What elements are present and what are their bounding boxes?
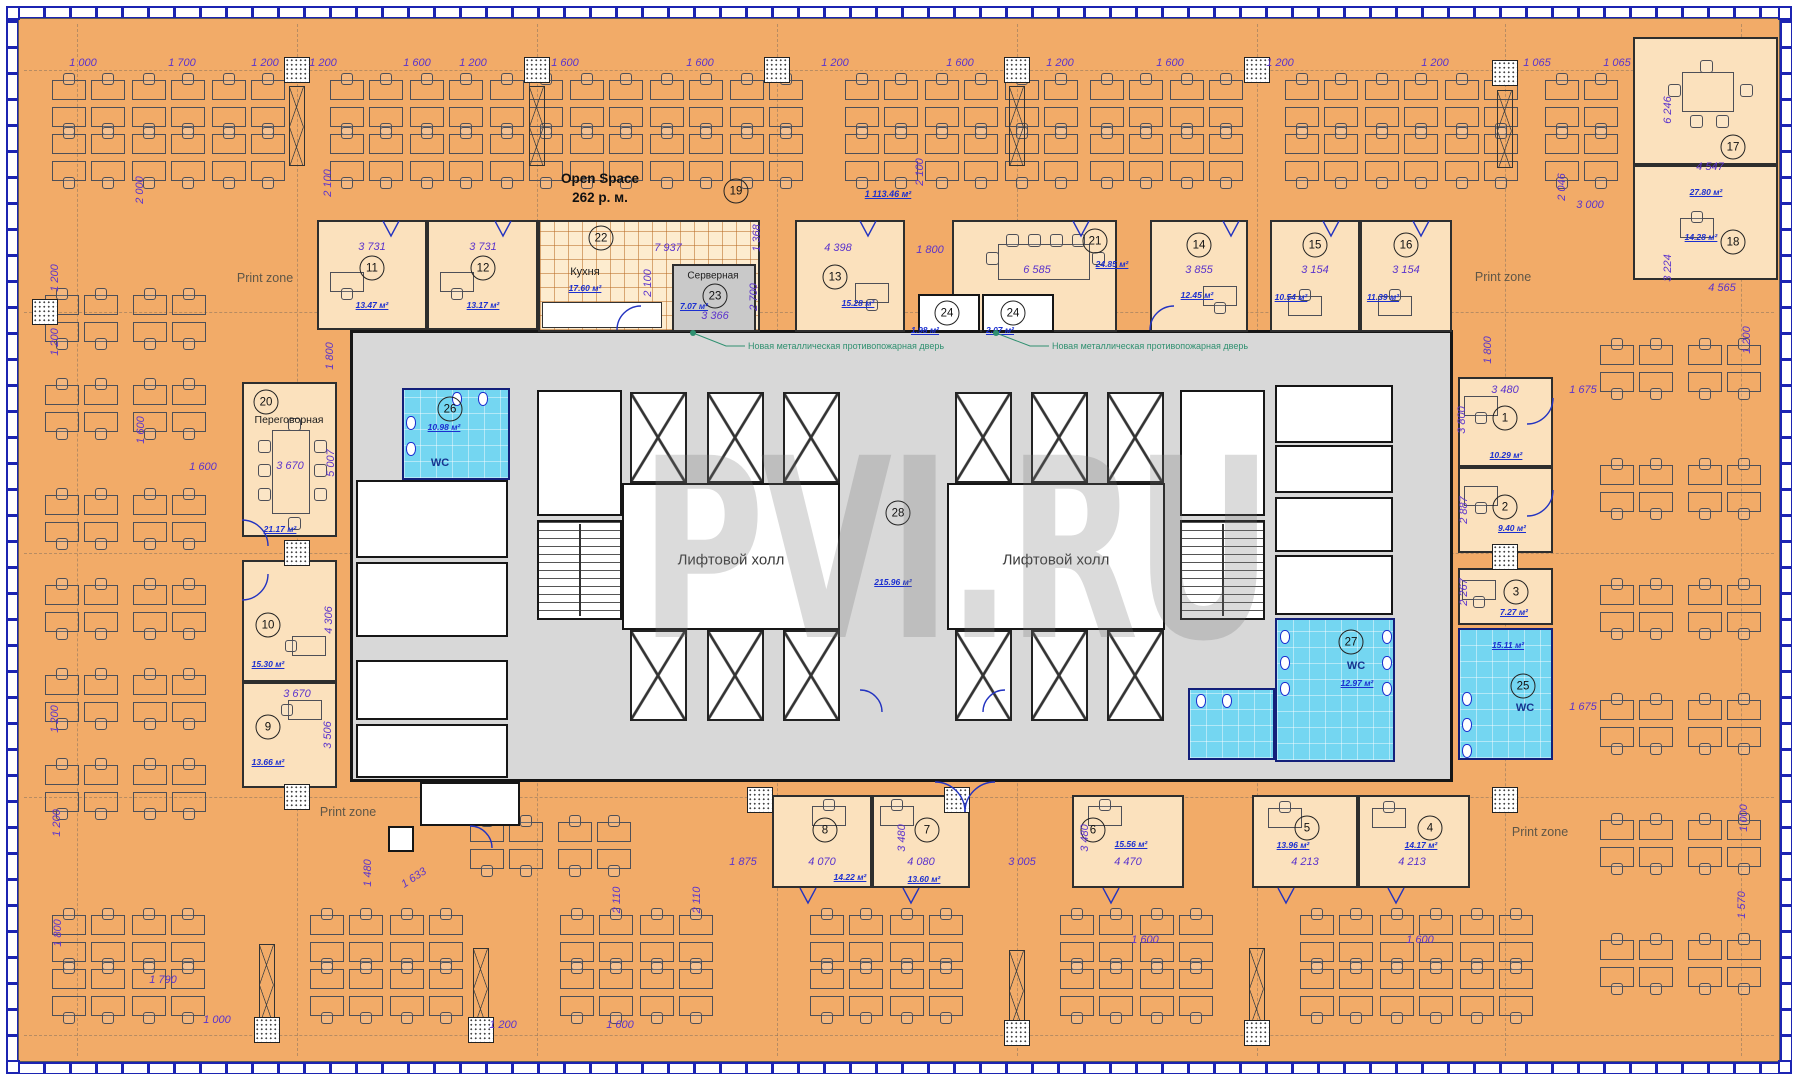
- chair-icon: [95, 758, 107, 770]
- core-room: [1275, 385, 1393, 443]
- chair-icon: [183, 378, 195, 390]
- area-label: 14.17 м²: [1405, 840, 1438, 850]
- room-number-badge: 3: [1504, 580, 1529, 605]
- chair-icon: [341, 73, 353, 85]
- chair-icon: [144, 808, 156, 820]
- chair-icon: [1311, 1012, 1323, 1024]
- chair-icon: [1740, 84, 1753, 97]
- room-number-badge: 15: [1303, 233, 1328, 258]
- chair-icon: [1181, 73, 1193, 85]
- chair-icon: [401, 962, 413, 974]
- chair-icon: [360, 1012, 372, 1024]
- dimension-label: 1 875: [729, 856, 757, 868]
- dimension-label: 1 065: [1523, 57, 1551, 69]
- chair-icon: [1738, 693, 1750, 705]
- area-label: 15.28 м²: [842, 298, 875, 308]
- chair-icon: [571, 1012, 583, 1024]
- chair-icon: [821, 962, 833, 974]
- chair-icon: [1650, 743, 1662, 755]
- stair-divider: [579, 524, 581, 616]
- stair-divider: [1222, 524, 1224, 616]
- chair-icon: [56, 628, 68, 640]
- chair-icon: [741, 73, 753, 85]
- chair-icon: [1190, 962, 1202, 974]
- area-label: 2.07 м²: [986, 325, 1014, 335]
- chair-icon: [1140, 127, 1152, 139]
- chair-icon: [856, 127, 868, 139]
- chair-icon: [1055, 127, 1067, 139]
- chair-icon: [975, 73, 987, 85]
- chair-icon: [440, 1012, 452, 1024]
- chair-icon: [651, 908, 663, 920]
- chair-icon: [183, 288, 195, 300]
- chair-icon: [102, 1012, 114, 1024]
- elevator-shaft: [783, 630, 840, 721]
- chair-icon: [1055, 73, 1067, 85]
- chair-icon: [581, 127, 593, 139]
- chair-icon: [700, 177, 712, 189]
- dimension-label: 1 200: [489, 1019, 517, 1031]
- dimension-label: 2 110: [611, 887, 623, 914]
- chair-icon: [1738, 743, 1750, 755]
- room-number-badge: 7: [915, 818, 940, 843]
- chair-icon: [1071, 908, 1083, 920]
- core-room: [1180, 390, 1265, 516]
- area-label: 13.17 м²: [467, 300, 500, 310]
- chair-icon: [1335, 73, 1347, 85]
- chair-icon: [821, 908, 833, 920]
- area-label: 10.29 м²: [1490, 450, 1523, 460]
- chair-icon: [901, 908, 913, 920]
- chair-icon: [608, 865, 620, 877]
- chair-icon: [1430, 908, 1442, 920]
- chair-icon: [421, 177, 433, 189]
- desk-icon: [292, 636, 326, 656]
- column: [764, 57, 790, 83]
- chair-icon: [1699, 458, 1711, 470]
- chair-icon: [1716, 115, 1729, 128]
- room-number-badge: 21: [1083, 229, 1108, 254]
- chair-icon: [1699, 338, 1711, 350]
- elevator-shaft: [707, 392, 764, 483]
- facade-l: [6, 20, 18, 1060]
- dimension-label: 1 600: [189, 461, 217, 473]
- chair-icon: [63, 73, 75, 85]
- chair-icon: [1181, 127, 1193, 139]
- elevator-shaft: [1107, 392, 1164, 483]
- chair-icon: [661, 177, 673, 189]
- chair-icon: [501, 127, 513, 139]
- room-number-badge: 25: [1511, 674, 1536, 699]
- chair-icon: [1611, 933, 1623, 945]
- dimension-label: 1 600: [403, 57, 431, 69]
- dimension-label: 1 200: [49, 705, 61, 733]
- core-room: [1275, 497, 1393, 552]
- chair-icon: [144, 338, 156, 350]
- floor-plan: Open Space 262 р. м. 1 113.46 м² PVI.RU …: [0, 0, 1798, 1080]
- chair-icon: [1220, 73, 1232, 85]
- chair-icon: [183, 578, 195, 590]
- area-label: 17.60 м²: [569, 283, 602, 293]
- chair-icon: [610, 962, 622, 974]
- chair-icon: [1415, 127, 1427, 139]
- dimension-label: 4 547: [1696, 161, 1724, 173]
- chair-icon: [102, 73, 114, 85]
- chair-icon: [1650, 693, 1662, 705]
- dimension-label: 3 506: [322, 721, 334, 749]
- open-space-label: Open Space 262 р. м.: [561, 170, 639, 208]
- chair-icon: [1028, 234, 1041, 247]
- chair-icon: [1430, 962, 1442, 974]
- chair-icon: [1383, 801, 1395, 813]
- chair-icon: [56, 758, 68, 770]
- print-zone-label: Print zone: [237, 271, 293, 285]
- dimension-label: 2 046: [1556, 173, 1568, 201]
- chair-icon: [690, 962, 702, 974]
- chair-icon: [1335, 127, 1347, 139]
- chair-icon: [690, 1012, 702, 1024]
- chair-icon: [1699, 933, 1711, 945]
- dimension-label: 1 600: [606, 1019, 634, 1031]
- chair-icon: [1699, 983, 1711, 995]
- dimension-label: 1 600: [686, 57, 714, 69]
- chair-icon: [144, 288, 156, 300]
- chair-icon: [1738, 933, 1750, 945]
- chair-icon: [661, 73, 673, 85]
- chair-icon: [481, 865, 493, 877]
- chair-icon: [182, 908, 194, 920]
- chair-icon: [183, 488, 195, 500]
- dimension-label: 1 800: [52, 919, 64, 947]
- chair-icon: [1376, 127, 1388, 139]
- chair-icon: [1700, 60, 1713, 73]
- chair-icon: [183, 428, 195, 440]
- elevator-shaft: [707, 630, 764, 721]
- dimension-label: 1 200: [51, 809, 63, 837]
- chair-icon: [1611, 743, 1623, 755]
- room-number-badge: 9: [256, 715, 281, 740]
- chair-icon: [1738, 628, 1750, 640]
- chair-icon: [1650, 813, 1662, 825]
- area-label: 15.30 м²: [252, 659, 285, 669]
- chair-icon: [1691, 211, 1703, 223]
- room-name-server: Серверная: [687, 271, 738, 282]
- wc-room: [1275, 618, 1395, 762]
- chair-icon: [1220, 177, 1232, 189]
- column: [254, 1017, 280, 1043]
- chair-icon: [1376, 73, 1388, 85]
- core-room: [1275, 555, 1393, 615]
- column: [284, 57, 310, 83]
- chair-icon: [223, 177, 235, 189]
- area-label: 1.98 м²: [911, 325, 939, 335]
- chair-icon: [95, 628, 107, 640]
- chair-icon: [258, 488, 271, 501]
- chair-icon: [321, 1012, 333, 1024]
- core-room: [356, 562, 508, 637]
- dimension-label: 1 800: [324, 342, 336, 370]
- chair-icon: [1456, 127, 1468, 139]
- chair-icon: [895, 73, 907, 85]
- elevator-shaft: [1107, 630, 1164, 721]
- dimension-label: 3 855: [1185, 264, 1213, 276]
- room-number-badge: 27: [1339, 630, 1364, 655]
- chair-icon: [1556, 127, 1568, 139]
- column: [1004, 57, 1030, 83]
- chair-icon: [440, 962, 452, 974]
- dimension-label: 3 005: [1008, 856, 1036, 868]
- chair-icon: [1376, 177, 1388, 189]
- chair-icon: [1473, 596, 1485, 608]
- toilet-icon: [478, 392, 488, 406]
- chair-icon: [63, 962, 75, 974]
- chair-icon: [421, 73, 433, 85]
- chair-icon: [1099, 799, 1111, 811]
- column: [1244, 1020, 1270, 1046]
- dimension-label: 1 200: [251, 57, 279, 69]
- chair-icon: [1190, 908, 1202, 920]
- chair-icon: [700, 73, 712, 85]
- chair-icon: [1151, 1012, 1163, 1024]
- area-label: 13.66 м²: [252, 757, 285, 767]
- column: [284, 540, 310, 566]
- chair-icon: [821, 1012, 833, 1024]
- dimension-label: 1 200: [49, 328, 61, 356]
- chair-icon: [1475, 502, 1487, 514]
- dimension-label: 4 213: [1398, 856, 1426, 868]
- dimension-label: 1 368: [751, 224, 763, 252]
- dimension-label: 1 200: [1266, 57, 1294, 69]
- dimension-label: 3 154: [1392, 264, 1420, 276]
- chair-icon: [95, 338, 107, 350]
- chair-icon: [1335, 177, 1347, 189]
- toilet-icon: [1280, 656, 1290, 670]
- chair-icon: [360, 908, 372, 920]
- chair-icon: [1650, 388, 1662, 400]
- elevator-shaft: [955, 392, 1012, 483]
- chair-icon: [63, 127, 75, 139]
- brace-icon: [259, 944, 275, 1026]
- chair-icon: [182, 127, 194, 139]
- column: [1492, 544, 1518, 570]
- chair-icon: [1311, 962, 1323, 974]
- chair-icon: [183, 718, 195, 730]
- chair-icon: [1050, 234, 1063, 247]
- toilet-icon: [1222, 694, 1232, 708]
- dimension-label: 4 306: [323, 606, 335, 634]
- area-label: 7.07 м²: [680, 301, 708, 311]
- chair-icon: [460, 127, 472, 139]
- chair-icon: [102, 908, 114, 920]
- area-label: 11.39 м²: [1367, 292, 1399, 302]
- chair-icon: [571, 962, 583, 974]
- chair-icon: [1510, 962, 1522, 974]
- chair-icon: [1699, 743, 1711, 755]
- dimension-label: 3 800: [1456, 406, 1468, 434]
- chair-icon: [1495, 177, 1507, 189]
- chair-icon: [401, 908, 413, 920]
- core-room: [1275, 445, 1393, 493]
- chair-icon: [1611, 338, 1623, 350]
- chair-icon: [183, 758, 195, 770]
- print-zone-label: Print zone: [1475, 270, 1531, 284]
- chair-icon: [1055, 177, 1067, 189]
- dimension-label: 5 007: [325, 449, 337, 477]
- dimension-label: 1 600: [1406, 934, 1434, 946]
- chair-icon: [569, 865, 581, 877]
- chair-icon: [620, 73, 632, 85]
- chair-icon: [183, 338, 195, 350]
- chair-icon: [540, 177, 552, 189]
- room-number-badge: 1: [1493, 406, 1518, 431]
- column: [284, 784, 310, 810]
- dimension-label: 1 065: [1603, 57, 1631, 69]
- meeting-table: [272, 430, 310, 514]
- chair-icon: [651, 1012, 663, 1024]
- chair-icon: [860, 962, 872, 974]
- chair-icon: [95, 808, 107, 820]
- kitchen-counter: [542, 302, 662, 328]
- core-room: [537, 390, 622, 516]
- brace-icon: [1009, 950, 1025, 1029]
- chair-icon: [1699, 508, 1711, 520]
- chair-icon: [380, 127, 392, 139]
- chair-icon: [401, 1012, 413, 1024]
- chair-icon: [183, 628, 195, 640]
- chair-icon: [63, 1012, 75, 1024]
- chair-icon: [901, 1012, 913, 1024]
- brace-icon: [289, 86, 305, 166]
- room-number-badge: 24: [935, 301, 960, 326]
- print-zone-label: Print zone: [1512, 825, 1568, 839]
- print-zone-label: Print zone: [320, 805, 376, 819]
- dimension-label: 1 200: [459, 57, 487, 69]
- chair-icon: [661, 127, 673, 139]
- chair-icon: [143, 1012, 155, 1024]
- room-number-badge: 4: [1418, 816, 1443, 841]
- meeting-table: [1682, 72, 1734, 112]
- toilet-icon: [1462, 692, 1472, 706]
- dimension-label: 1 675: [1569, 701, 1597, 713]
- chair-icon: [56, 378, 68, 390]
- chair-icon: [856, 73, 868, 85]
- grid-line-horizontal: [24, 1035, 1774, 1036]
- chair-icon: [1456, 177, 1468, 189]
- wc-label: WC: [431, 457, 449, 469]
- dimension-label: 4 398: [824, 242, 852, 254]
- chair-icon: [183, 538, 195, 550]
- chair-icon: [1101, 127, 1113, 139]
- chair-icon: [856, 177, 868, 189]
- facade-corner: [6, 6, 20, 20]
- chair-icon: [95, 578, 107, 590]
- dimension-label: 3 731: [469, 241, 497, 253]
- dimension-label: 1 675: [1569, 384, 1597, 396]
- room-number-badge: 26: [438, 397, 463, 422]
- room-name-meeting: Переговорная: [255, 414, 324, 426]
- facade-b: [20, 1062, 1778, 1074]
- dimension-label: 3 480: [896, 824, 908, 852]
- chair-icon: [860, 1012, 872, 1024]
- chair-icon: [341, 177, 353, 189]
- chair-icon: [1650, 863, 1662, 875]
- dimension-label: 6 246: [1662, 96, 1674, 124]
- fire-door-note: Новая металлическая противопожарная двер…: [748, 341, 944, 351]
- chair-icon: [321, 962, 333, 974]
- chair-icon: [1430, 1012, 1442, 1024]
- chair-icon: [281, 704, 293, 716]
- dimension-label: 7 937: [654, 242, 682, 254]
- chair-icon: [1350, 908, 1362, 920]
- chair-icon: [780, 177, 792, 189]
- brace-icon: [1249, 948, 1265, 1026]
- chair-icon: [95, 288, 107, 300]
- area-label: 12.45 м²: [1181, 290, 1214, 300]
- toilet-icon: [406, 416, 416, 430]
- chair-icon: [95, 538, 107, 550]
- chair-icon: [1611, 458, 1623, 470]
- dimension-label: 1 000: [203, 1014, 231, 1026]
- dimension-label: 4 070: [808, 856, 836, 868]
- dimension-label: 1 200: [1741, 326, 1753, 354]
- dimension-label: 1 700: [168, 57, 196, 69]
- area-label: 13.96 м²: [1277, 840, 1310, 850]
- desk-icon: [288, 700, 322, 720]
- chair-icon: [1279, 801, 1291, 813]
- dimension-label: 1 000: [1738, 804, 1750, 832]
- chair-icon: [258, 440, 271, 453]
- chair-icon: [1650, 338, 1662, 350]
- chair-icon: [144, 538, 156, 550]
- chair-icon: [1296, 127, 1308, 139]
- dimension-label: 2 100: [322, 169, 334, 197]
- chair-icon: [258, 464, 271, 477]
- room-number-badge: 8: [813, 818, 838, 843]
- chair-icon: [262, 177, 274, 189]
- lift-hall-label: Лифтовой холл: [678, 552, 785, 569]
- chair-icon: [895, 127, 907, 139]
- facade-corner: [1778, 6, 1792, 20]
- dimension-label: 2 000: [134, 176, 146, 204]
- room-name-kitchen: Кухня: [570, 266, 599, 278]
- chair-icon: [1738, 458, 1750, 470]
- dimension-label: 1 200: [309, 57, 337, 69]
- dimension-label: 1 600: [1156, 57, 1184, 69]
- chair-icon: [569, 815, 581, 827]
- chair-icon: [380, 73, 392, 85]
- chair-icon: [1101, 177, 1113, 189]
- chair-icon: [1350, 962, 1362, 974]
- dimension-label: 1 200: [1421, 57, 1449, 69]
- chair-icon: [1611, 628, 1623, 640]
- wc-label: WC: [1347, 660, 1365, 672]
- chair-icon: [1391, 962, 1403, 974]
- chair-icon: [936, 73, 948, 85]
- chair-icon: [1071, 962, 1083, 974]
- column: [32, 299, 58, 325]
- brace-icon: [1009, 86, 1025, 166]
- dimension-label: 3 731: [358, 241, 386, 253]
- dimension-label: 1 600: [946, 57, 974, 69]
- toilet-icon: [1280, 682, 1290, 696]
- chair-icon: [421, 127, 433, 139]
- dimension-label: 1 800: [1482, 336, 1494, 364]
- dimension-label: 4 565: [1708, 282, 1736, 294]
- chair-icon: [144, 628, 156, 640]
- chair-icon: [1475, 412, 1487, 424]
- facade-r: [1780, 20, 1792, 1060]
- elevator-shaft: [783, 392, 840, 483]
